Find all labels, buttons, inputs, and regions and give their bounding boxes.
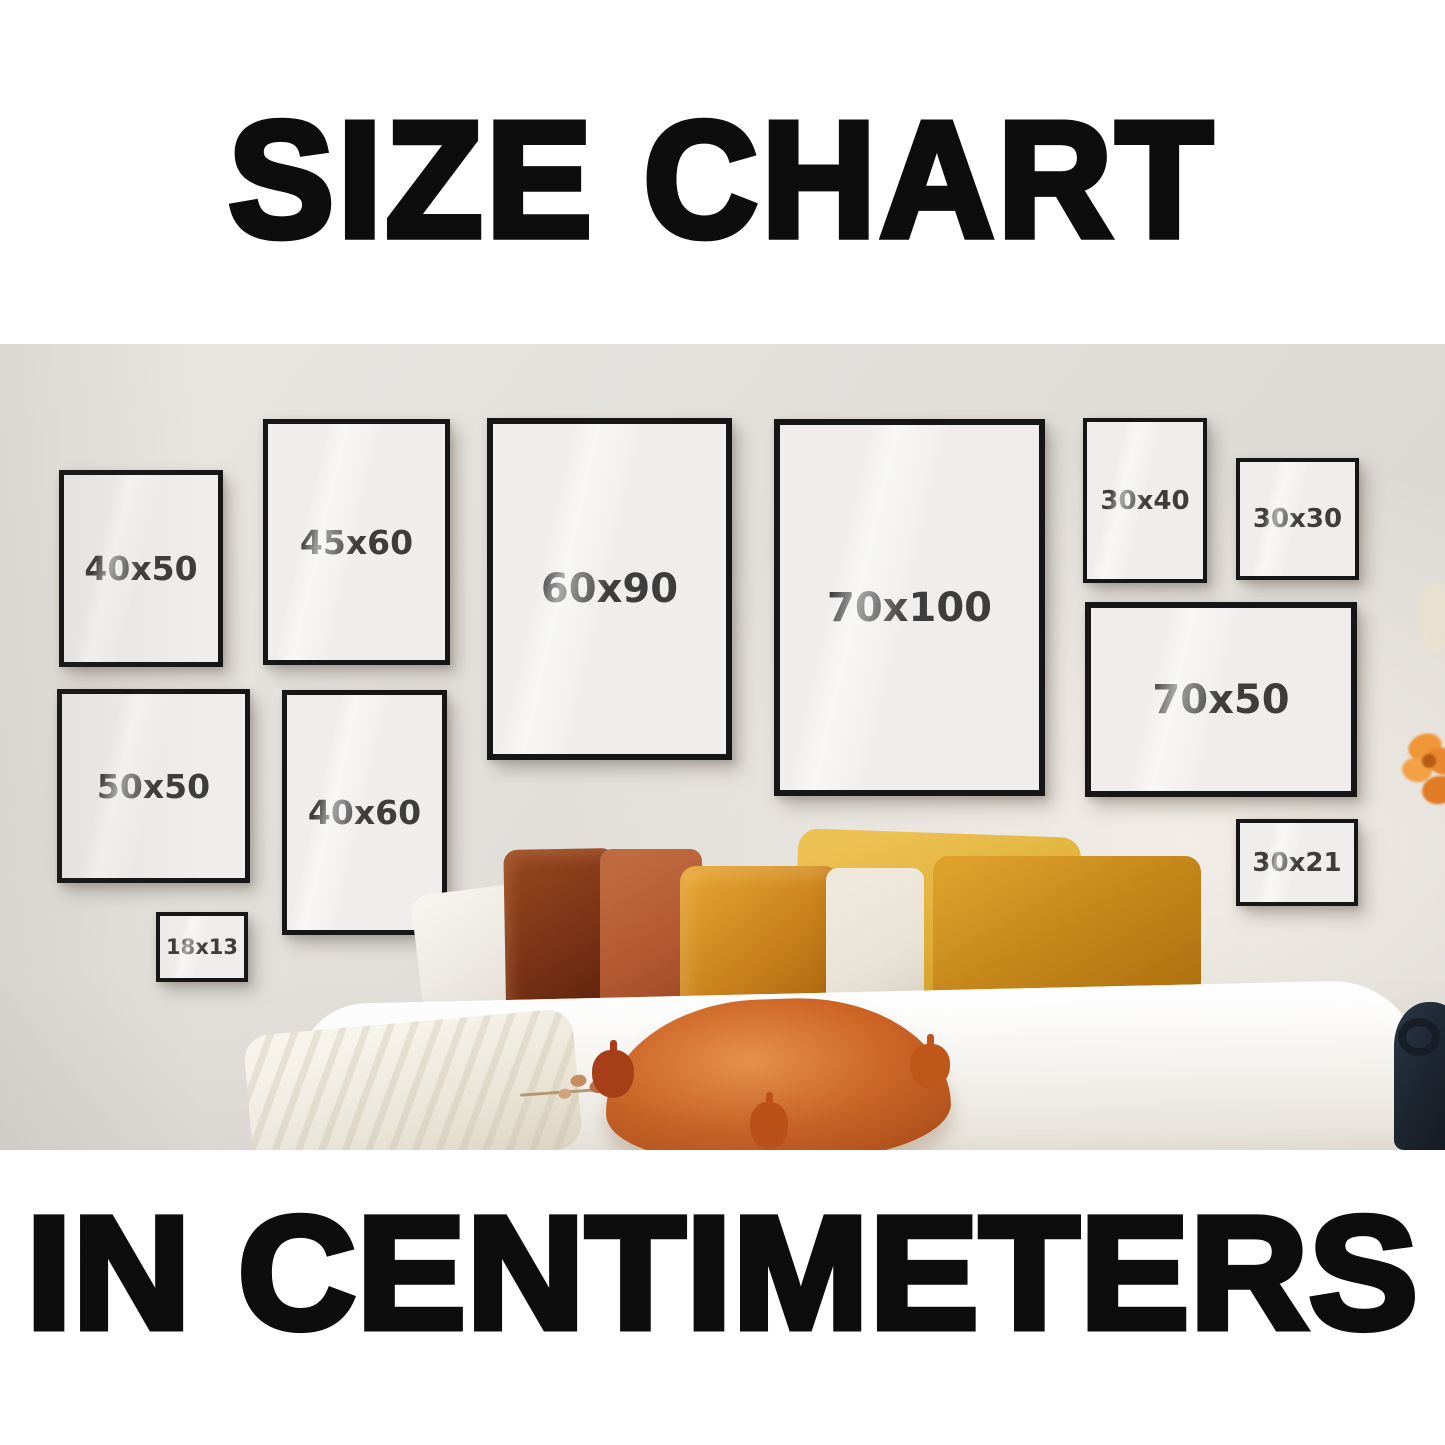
frame-50x50: 50x50: [57, 689, 250, 883]
dark-vase: [1394, 1002, 1445, 1150]
frame-size-label: 50x50: [97, 767, 210, 806]
title-band: SIZE CHART: [0, 0, 1445, 344]
tassel-right: [910, 1044, 950, 1088]
frame-size-label: 30x21: [1252, 848, 1341, 878]
frame-60x90: 60x90: [487, 418, 732, 760]
frame-70x50: 70x50: [1085, 602, 1357, 797]
size-chart-graphic: SIZE CHART 40x50 45x60 60x90 70x100 30x4…: [0, 0, 1445, 1445]
frame-40x50: 40x50: [59, 470, 223, 667]
orange-flower: [1400, 732, 1445, 818]
bedroom-photo: 40x50 45x60 60x90 70x100 30x40 30x30 70x…: [0, 344, 1445, 1150]
frame-size-label: 45x60: [300, 523, 413, 562]
pale-leaf-blur: [1418, 582, 1445, 654]
frame-size-label: 30x30: [1253, 504, 1342, 534]
frame-18x13: 18x13: [156, 912, 248, 982]
frame-size-label: 40x50: [84, 549, 197, 588]
frame-size-label: 70x50: [1152, 677, 1289, 723]
frame-30x30: 30x30: [1236, 458, 1359, 580]
frame-size-label: 60x90: [541, 566, 678, 612]
frame-size-label: 40x60: [308, 793, 421, 832]
frame-size-label: 30x40: [1100, 486, 1189, 516]
frame-size-label: 70x100: [827, 585, 992, 631]
footer-text: IN CENTIMETERS: [26, 1181, 1418, 1365]
frame-45x60: 45x60: [263, 419, 450, 665]
frame-size-label: 18x13: [166, 935, 238, 959]
page-title: SIZE CHART: [229, 86, 1217, 274]
tassel-left: [592, 1050, 634, 1098]
frame-70x100: 70x100: [774, 419, 1045, 796]
frame-30x40: 30x40: [1083, 418, 1207, 583]
footer-band: IN CENTIMETERS: [0, 1150, 1445, 1445]
frame-30x21: 30x21: [1236, 819, 1358, 906]
tassel-bottom: [750, 1102, 788, 1150]
